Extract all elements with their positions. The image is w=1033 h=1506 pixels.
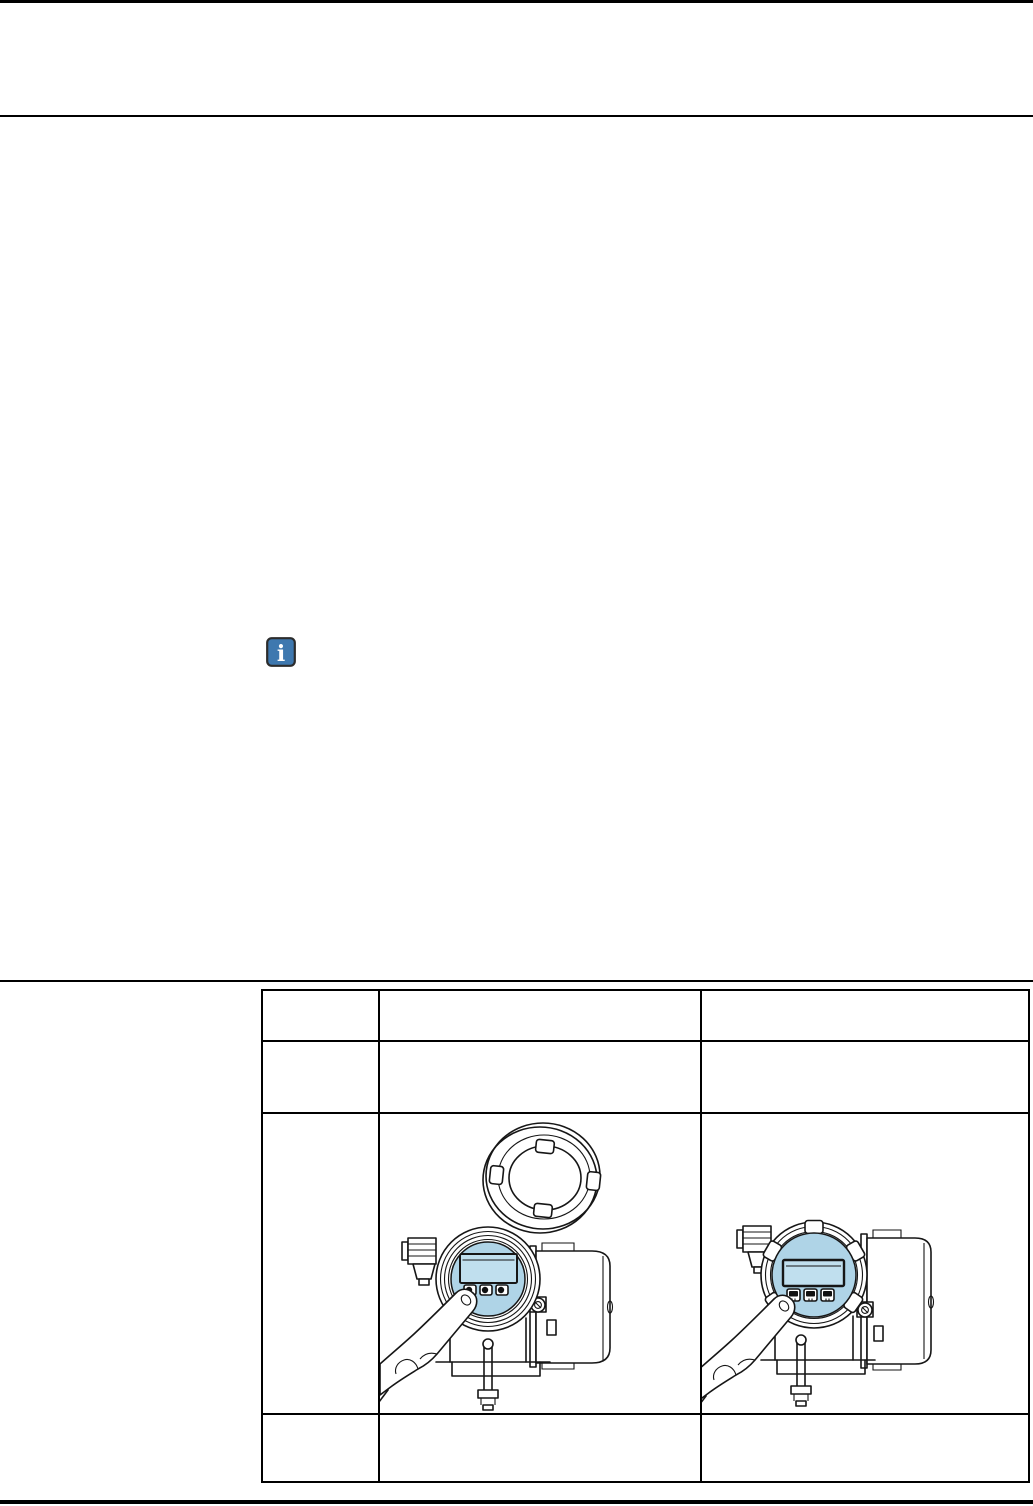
transmitter-housing-body [530,1243,613,1369]
table-cell-figure [702,1114,1028,1415]
lcd-display [783,1260,844,1286]
info-icon-glyph: i [277,641,285,667]
pointing-finger [702,1295,795,1412]
lcd-display [460,1254,517,1283]
pointing-finger [380,1289,477,1406]
table-cell [702,1415,1028,1481]
page-header-rule [0,115,1033,117]
table-cell [380,991,702,1042]
table-cell [702,1042,1028,1114]
table-cell [263,1042,380,1114]
cable-gland [402,1238,436,1285]
table-cell [263,1114,380,1415]
transmitter-touch-control-closed-cover-figure [702,1114,1028,1413]
operating-keys [787,1289,834,1301]
table-cell [380,1415,702,1481]
transmitter-housing-body [857,1230,934,1370]
table-cell [380,1042,702,1114]
table-cell-figure [380,1114,702,1415]
table-cell [263,991,380,1042]
transmitter-display-cover-removed-figure [380,1114,700,1413]
table-cell [702,991,1028,1042]
info-icon: i [266,637,296,667]
document-page: i [0,0,1033,1506]
section-divider-rule [0,980,1033,982]
operation-options-table [261,989,1030,1483]
table-cell [263,1415,380,1481]
page-footer-rule [0,1500,1033,1504]
page-top-edge-bar [0,0,1033,3]
housing-cover-ring [483,1123,601,1233]
